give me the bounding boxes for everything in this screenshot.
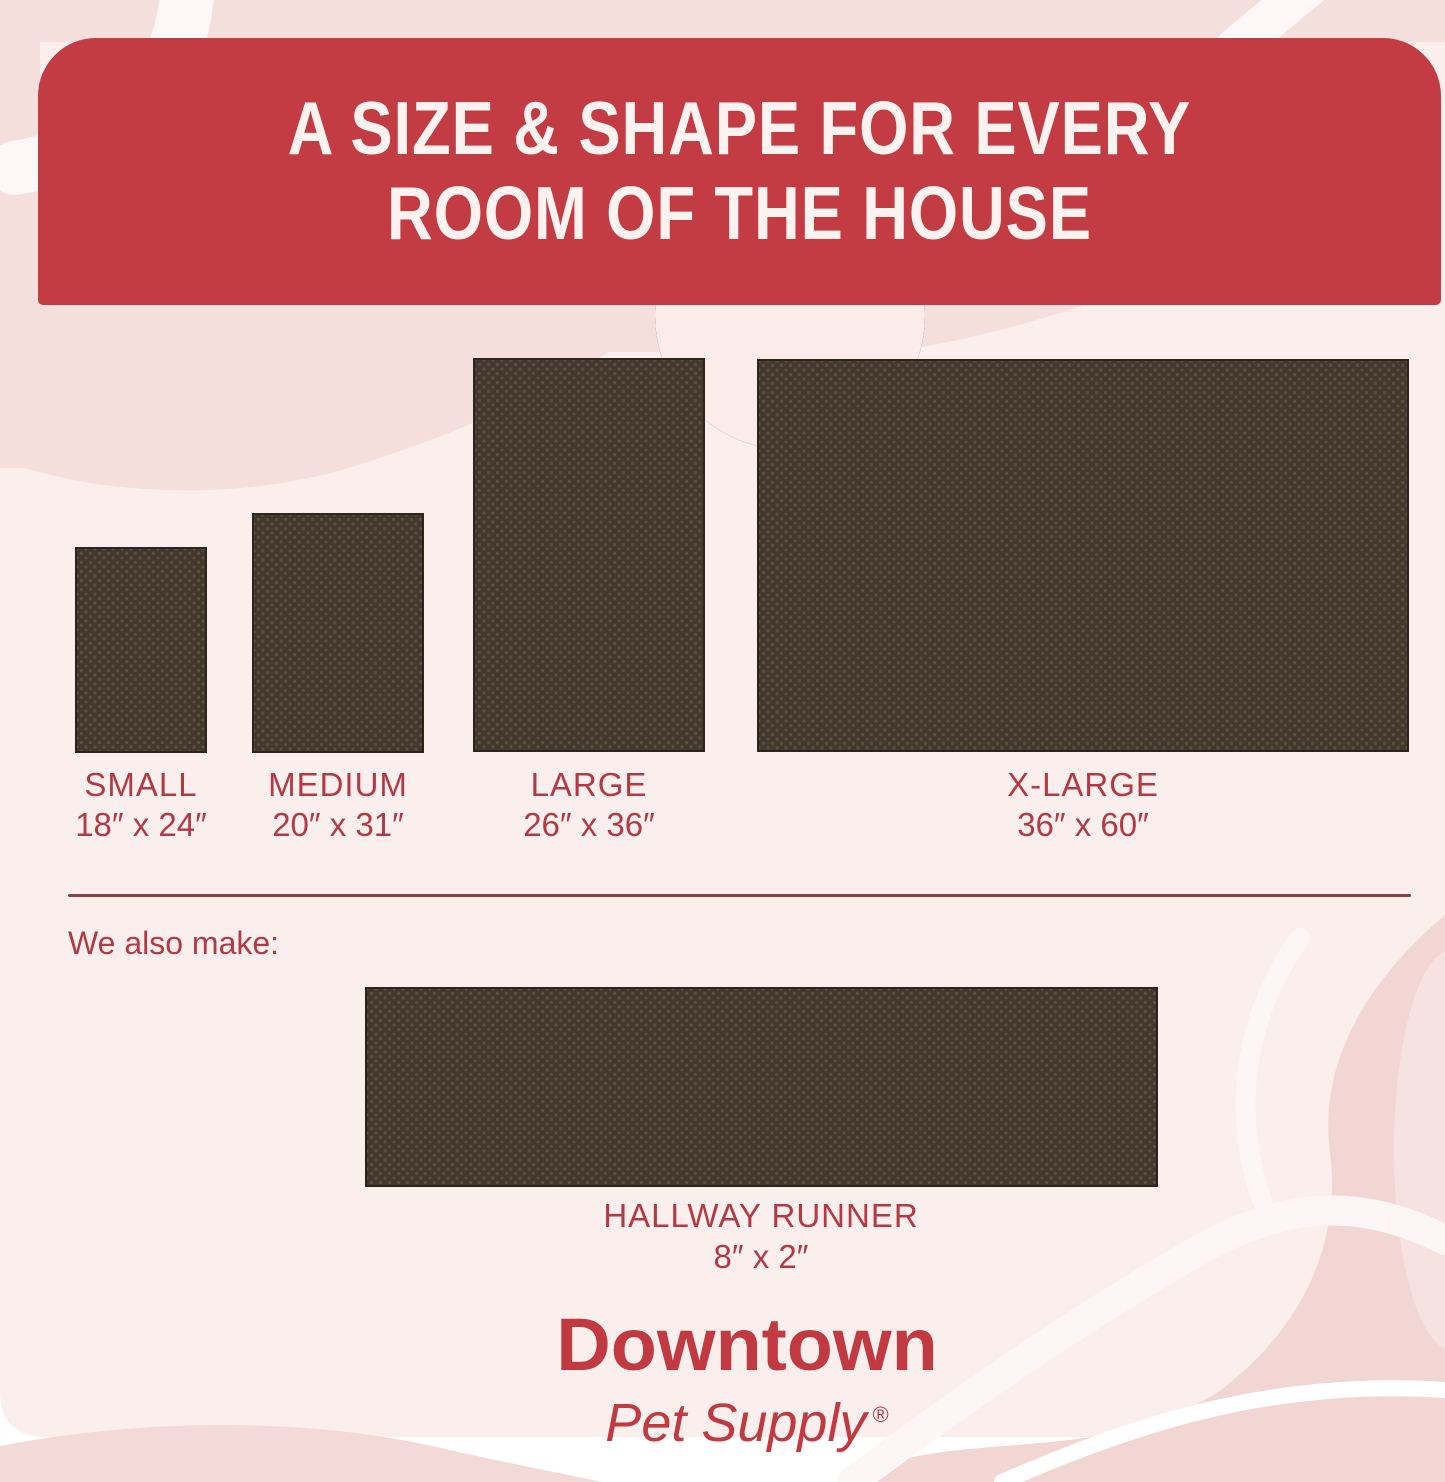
size-dimensions: 26″ x 36″ bbox=[489, 806, 689, 844]
mat-large bbox=[473, 358, 705, 752]
also-make-text: We also make: bbox=[68, 925, 279, 962]
size-label-small: SMALL 18″ x 24″ bbox=[41, 766, 241, 844]
registered-mark: ® bbox=[872, 1402, 888, 1427]
section-divider bbox=[68, 894, 1411, 897]
underbanner-band bbox=[0, 303, 1090, 352]
brand-name: Downtown bbox=[441, 1308, 1053, 1382]
size-label-xlarge: X-LARGE 36″ x 60″ bbox=[983, 766, 1183, 844]
size-label-medium: MEDIUM 20″ x 31″ bbox=[238, 766, 438, 844]
infographic-canvas: A SIZE & SHAPE FOR EVERY ROOM OF THE HOU… bbox=[0, 0, 1445, 1482]
size-name: LARGE bbox=[489, 766, 689, 804]
size-name: SMALL bbox=[41, 766, 241, 804]
brand-subtitle: Pet Supply® bbox=[447, 1386, 1047, 1452]
brand-logo: Downtown Pet Supply® bbox=[447, 1308, 1047, 1452]
size-dimensions: 20″ x 31″ bbox=[238, 806, 438, 844]
mat-xlarge bbox=[757, 359, 1409, 752]
size-dimensions: 36″ x 60″ bbox=[983, 806, 1183, 844]
runner-label: HALLWAY RUNNER 8″ x 2″ bbox=[561, 1197, 961, 1276]
header-title-line1: A SIZE & SHAPE FOR EVERY bbox=[288, 85, 1192, 173]
mat-small bbox=[75, 547, 207, 753]
size-name: MEDIUM bbox=[238, 766, 438, 804]
size-dimensions: 18″ x 24″ bbox=[41, 806, 241, 844]
size-label-large: LARGE 26″ x 36″ bbox=[489, 766, 689, 844]
header-title-line2: ROOM OF THE HOUSE bbox=[387, 170, 1092, 258]
header-banner: A SIZE & SHAPE FOR EVERY ROOM OF THE HOU… bbox=[38, 38, 1441, 305]
mat-hallway-runner bbox=[365, 987, 1158, 1187]
mat-medium bbox=[252, 513, 424, 753]
brand-subtitle-text: Pet Supply bbox=[605, 1393, 866, 1453]
runner-dimensions: 8″ x 2″ bbox=[561, 1238, 961, 1276]
runner-name: HALLWAY RUNNER bbox=[561, 1197, 961, 1235]
size-name: X-LARGE bbox=[983, 766, 1183, 804]
